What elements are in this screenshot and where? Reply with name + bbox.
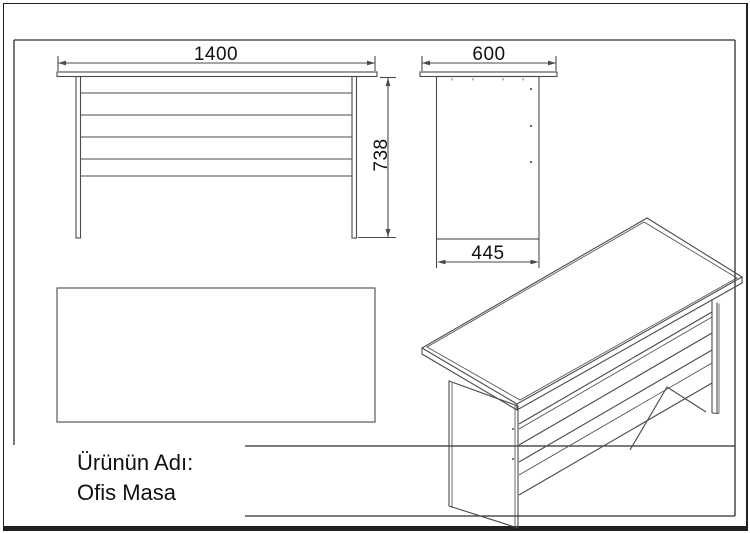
dimension-base-depth-label: 445 — [438, 244, 538, 264]
dimension-height-label: 738 — [372, 105, 392, 205]
back-slats — [519, 312, 712, 495]
dimension-depth-label: 600 — [439, 45, 539, 65]
perspective-view — [422, 218, 742, 528]
panel-screw-dots — [512, 428, 514, 460]
side-view — [420, 56, 557, 268]
top-view — [57, 288, 375, 422]
drawing-page: 1400 600 445 738 Ürünün Adı: Ofis Masa — [0, 0, 750, 533]
rear-leg — [712, 300, 719, 414]
screw-dots — [530, 88, 532, 163]
title-block: Ürünün Adı: Ofis Masa — [77, 448, 193, 508]
product-name-label: Ürünün Adı: — [77, 448, 193, 478]
screw-marks — [452, 78, 523, 81]
product-name-value: Ofis Masa — [77, 478, 193, 508]
front-view — [57, 56, 396, 238]
dimension-width-label: 1400 — [166, 45, 266, 65]
